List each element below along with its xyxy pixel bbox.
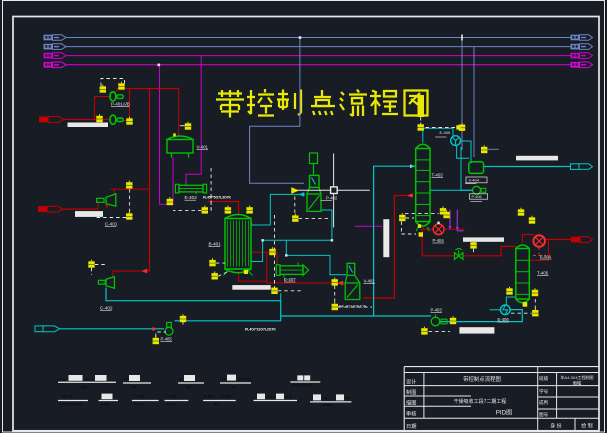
svg-text:E-407: E-407 [284,277,296,282]
svg-text:?4?3: ?4?3 [166,401,176,406]
svg-text:?4: ?4 [346,396,351,401]
svg-text:E-408: E-408 [540,254,551,259]
svg-text:学号: 学号 [539,388,549,395]
svg-text:绘 制: 绘 制 [581,422,592,429]
svg-text:34?: 34? [186,385,193,390]
svg-text:P-401A/B: P-401A/B [111,102,130,107]
svg-text:P-405: P-405 [161,337,173,342]
svg-text:P: P [179,377,182,382]
svg-text:PL4O7'13O7L2O7K: PL4O7'13O7L2O7K [245,328,276,332]
svg-text:T-405: T-405 [537,271,549,276]
svg-text:4?4?2?34?3: 4?4?2?34?3 [59,401,82,406]
svg-text:P-403: P-403 [431,308,443,313]
svg-text:带控制点流程图: 带控制点流程图 [463,375,501,383]
svg-text:审核: 审核 [406,409,416,417]
svg-text:FL457'0O7L3O7K: FL457'0O7L3O7K [203,195,231,199]
svg-text:4?: 4? [231,385,236,390]
svg-text:M4L 3O7 3O8 1O5: M4L 3O7 3O8 1O5 [339,305,366,309]
svg-text:4?P4?: 4?P4? [322,403,334,408]
svg-text:P-402: P-402 [326,195,338,200]
svg-text:P-404: P-404 [433,238,445,243]
svg-text:7 402: 7 402 [167,394,178,399]
svg-text:成判: 成判 [539,399,549,406]
svg-text:V-404: V-404 [469,178,480,183]
svg-text:17: 17 [221,377,226,382]
svg-text:? 4: ? 4 [267,395,273,400]
svg-text:P: P [86,377,89,382]
svg-text:干燥吸收工段7二期工程: 干燥吸收工段7二期工程 [454,398,507,405]
svg-text:PR: PR [131,385,137,390]
svg-text:7 401: 7 401 [135,394,146,399]
svg-text:P 4: P 4 [59,377,66,382]
svg-text:17 4?2: 17 4?2 [238,377,251,382]
svg-text:??4??: ??4?? [133,401,145,406]
svg-text:E-406: E-406 [498,317,510,322]
svg-text:4 403: 4 403 [204,394,215,399]
svg-text:4?4?: 4?4? [101,401,111,406]
svg-text:V-401: V-401 [197,145,209,150]
svg-text:图幅: 图幅 [573,380,581,387]
svg-text:日期: 日期 [406,423,416,430]
svg-text:P-406: P-406 [472,195,482,199]
svg-text:描图: 描图 [406,398,416,406]
svg-text:V-402: V-402 [364,279,376,284]
svg-text:C-402: C-402 [100,306,113,311]
svg-text:2X?2?2L?5: 2X?2?2L?5 [291,383,312,388]
svg-text:434: 434 [80,385,87,390]
svg-text:B-401: B-401 [209,242,222,247]
svg-text:T-403: T-403 [432,173,444,178]
svg-text:? 4: ? 4 [286,395,292,400]
svg-text:身 份: 身 份 [550,422,561,429]
svg-text:制图: 制图 [406,388,416,396]
svg-text:PID图: PID图 [496,410,513,417]
svg-text:班级: 班级 [539,375,549,382]
svg-text:设计: 设计 [406,377,416,385]
svg-text:E-405: E-405 [440,130,451,135]
svg-text:年A4.3X4工程制图: 年A4.3X4工程制图 [560,374,593,380]
svg-text:4?: 4? [214,401,219,406]
svg-text:E-402: E-402 [185,195,198,200]
svg-text:P: P [124,377,127,382]
svg-text:C-401: C-401 [105,222,118,227]
svg-text:?4: ?4 [323,396,328,401]
svg-text:4 402: 4 402 [221,394,232,399]
svg-text:D4 01: D4 01 [62,394,73,399]
